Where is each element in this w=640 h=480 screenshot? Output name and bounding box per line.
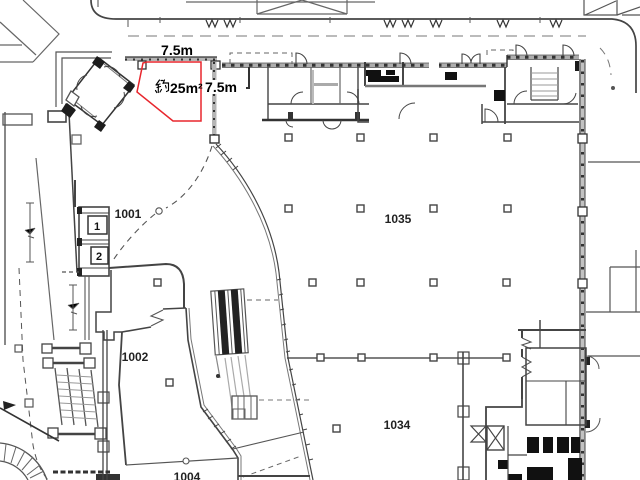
svg-text:1035: 1035 <box>385 212 412 226</box>
svg-text:7.5m: 7.5m <box>161 42 193 58</box>
svg-text:25m²: 25m² <box>170 80 203 96</box>
svg-text:7.5m: 7.5m <box>205 79 237 95</box>
svg-text:2: 2 <box>96 251 102 263</box>
svg-text:1002: 1002 <box>122 350 149 364</box>
svg-text:1001: 1001 <box>115 207 142 221</box>
svg-text:1004: 1004 <box>174 470 201 480</box>
svg-text:1034: 1034 <box>384 418 411 432</box>
svg-text:1: 1 <box>94 221 100 233</box>
